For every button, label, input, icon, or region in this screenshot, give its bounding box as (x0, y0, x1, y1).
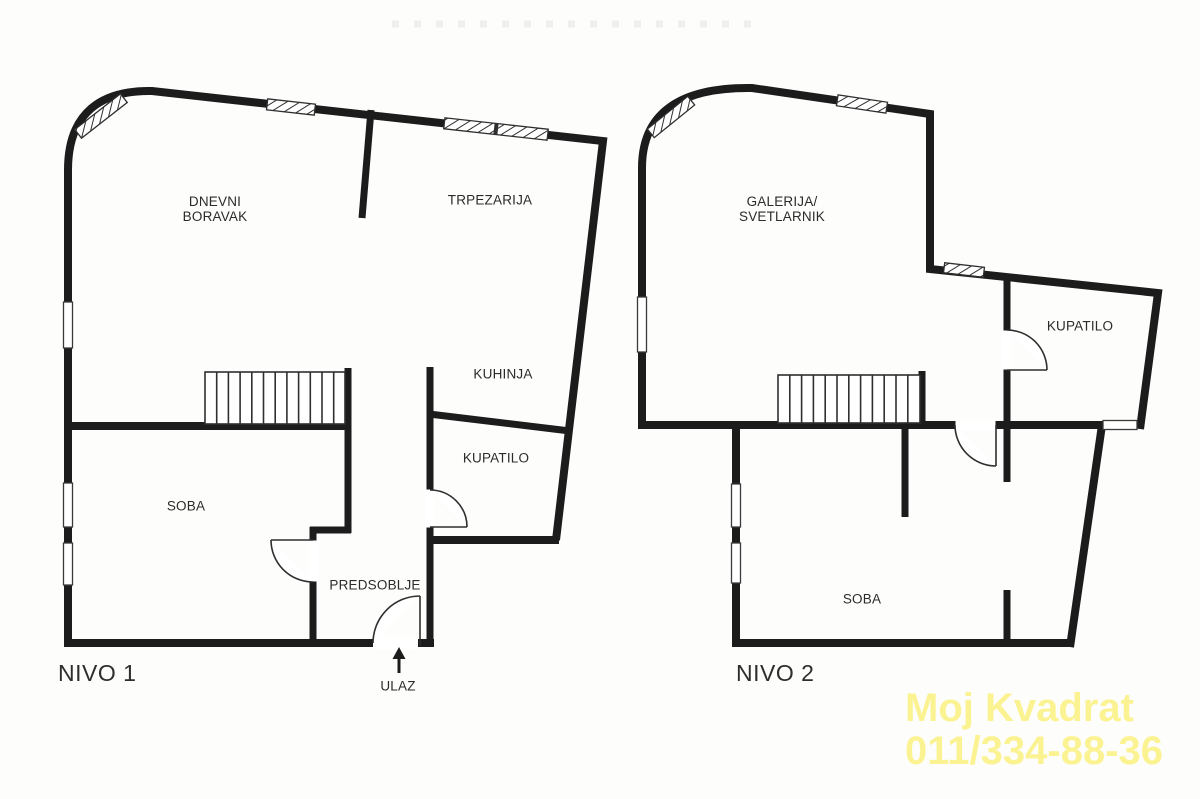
floor-plan-page: DNEVNI BORAVAK TRPEZARIJA KUHINJA KUPATI… (0, 0, 1200, 799)
level2-plain-windows (638, 297, 1138, 583)
level1-stairs (205, 372, 345, 424)
level1-entrance-door (373, 596, 420, 650)
room-label-kitchen: KUHINJA (473, 367, 532, 382)
level2-stairs (778, 375, 920, 423)
room-label-dining: TRPEZARIJA (448, 193, 533, 208)
entrance-arrow-icon (393, 647, 406, 673)
level2-bedroom-right-wall (1070, 425, 1102, 647)
room-label-hallway: PREDSOBLJE (329, 578, 420, 593)
level1-hatched-windows (75, 94, 549, 140)
entrance-label: ULAZ (380, 679, 415, 694)
room-label-living: DNEVNI BORAVAK (183, 194, 248, 224)
room-label-bathroom-2: KUPATILO (1047, 319, 1113, 334)
room-label-bathroom-1: KUPATILO (463, 451, 529, 466)
level1-kitchen-bath-divider (429, 414, 570, 431)
watermark: Moj Kvadrat 011/334-88-36 (905, 687, 1163, 773)
level1-bathroom-door (425, 490, 467, 528)
level1-living-dining-partition (362, 110, 371, 218)
room-label-bedroom-1: SOBA (167, 499, 205, 514)
level1-title: NIVO 1 (58, 660, 136, 687)
floor-plan-drawing (0, 0, 1200, 799)
watermark-line1: Moj Kvadrat (905, 687, 1163, 730)
level1-bedroom-door (271, 540, 318, 582)
level2-plan (638, 88, 1158, 647)
room-label-gallery: GALERIJA/ SVETLARNIK (739, 194, 825, 224)
level2-bedroom-door (955, 420, 996, 466)
level2-title: NIVO 2 (736, 660, 814, 687)
room-label-bedroom-2: SOBA (843, 592, 881, 607)
level2-bathroom-door (1002, 330, 1047, 370)
watermark-line2: 011/334-88-36 (905, 730, 1163, 773)
